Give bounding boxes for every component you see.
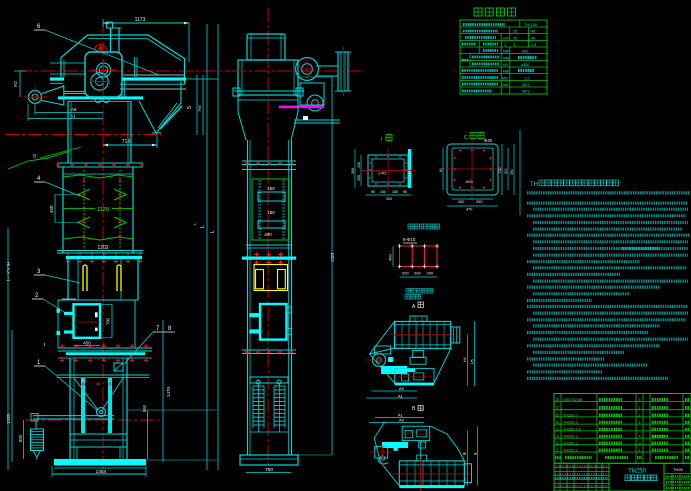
svg-text:1120: 1120 [97,207,109,213]
svg-text:200: 200 [402,271,409,276]
svg-text:1: 1 [638,406,640,410]
svg-text:320: 320 [386,197,392,201]
svg-text:A9: A9 [399,386,405,391]
svg-text:Q235-A: Q235-A [652,435,665,439]
svg-text:TH250: TH250 [628,469,647,475]
svg-text:1: 1 [638,449,640,453]
svg-text:H( A.A —): H( A.A —) [6,262,11,282]
svg-text:90: 90 [403,190,407,194]
svg-text:800: 800 [18,434,23,442]
svg-text:250: 250 [267,186,275,191]
svg-text:H5: H5 [471,359,475,364]
svg-text:200: 200 [427,271,434,276]
svg-text:A9: A9 [71,107,77,112]
svg-text:600: 600 [466,179,473,184]
svg-text:390: 390 [510,169,514,175]
svg-text:150: 150 [380,190,386,194]
svg-text:30: 30 [513,37,517,41]
svg-text:2: 2 [638,442,640,446]
svg-text:470: 470 [466,208,472,212]
svg-text:TH25: TH25 [673,467,684,472]
svg-text:TH250.1: TH250.1 [563,449,578,453]
svg-text:400: 400 [522,50,528,54]
svg-text:M/S: M/S [502,77,509,81]
svg-text:Ⅰ: Ⅰ [44,342,45,348]
svg-text:⊥: ⊥ [192,222,197,226]
svg-text:130: 130 [498,167,502,173]
svg-text:r/mb: r/mb [501,83,508,87]
svg-text:1.3: 1.3 [531,43,536,47]
svg-text:1335: 1335 [6,413,11,424]
svg-text:1323: 1323 [330,252,335,262]
svg-text:60: 60 [439,168,443,172]
svg-text:TH250.6: TH250.6 [563,421,578,425]
svg-text:4: 4 [638,435,640,439]
svg-text:400: 400 [264,232,272,237]
svg-text:1173: 1173 [135,17,146,23]
svg-text:40: 40 [531,30,535,34]
svg-text:260: 260 [458,200,464,204]
svg-text:25: 25 [513,30,517,34]
svg-text:450: 450 [388,254,393,261]
svg-text:130: 130 [357,162,361,168]
svg-text:48.5: 48.5 [522,83,529,87]
svg-text:1202: 1202 [97,245,108,251]
svg-text:C: C [464,135,468,141]
svg-text:1-Φ2: 1-Φ2 [378,172,387,176]
svg-text:1464: 1464 [96,469,107,475]
svg-text:8-Φ10: 8-Φ10 [403,237,416,242]
svg-text:GB5782-86: GB5782-86 [563,398,582,402]
svg-text:MM: MM [503,50,509,54]
svg-text:KN: KN [503,63,508,67]
svg-text:MM: MM [503,57,509,61]
svg-text:A1: A1 [398,393,404,398]
svg-text:3: 3 [513,43,515,47]
svg-text:200: 200 [414,271,421,276]
svg-text:780: 780 [106,317,111,325]
svg-text:4: 4 [638,398,640,402]
svg-text:750: 750 [265,467,273,473]
svg-text:5: 5 [187,106,193,109]
svg-text:90: 90 [371,190,375,194]
svg-text:B: B [33,154,37,160]
svg-text:TH250.2: TH250.2 [563,442,578,446]
svg-text:mm: mm [503,37,509,41]
svg-text:B: B [462,452,467,455]
svg-text:H4: H4 [463,357,467,362]
svg-text:1.2: 1.2 [524,77,529,81]
svg-text:1: 1 [638,421,640,425]
svg-text:Φ40: Φ40 [484,138,493,143]
svg-text:TH: TH [530,182,538,188]
svg-text:1: 1 [504,43,506,47]
svg-text:MM: MM [503,70,509,74]
svg-text:450: 450 [49,205,54,213]
svg-text:TH 150: TH 150 [524,22,538,27]
svg-text:940: 940 [142,404,147,412]
svg-text:1470: 1470 [166,386,171,397]
svg-text:TH250.7: TH250.7 [563,414,578,418]
svg-text:150: 150 [392,190,398,194]
svg-text:155: 155 [357,175,361,181]
svg-text:L: L [210,230,216,233]
svg-text:200: 200 [476,200,482,204]
svg-text:H2: H2 [13,81,18,87]
svg-text:TH250.3: TH250.3 [563,435,578,439]
svg-text:A1: A1 [398,412,404,417]
svg-text:300: 300 [504,168,508,174]
svg-text:713: 713 [122,139,131,145]
svg-text:L: L [200,225,206,228]
svg-text:360: 360 [351,168,355,174]
svg-text:40: 40 [531,37,535,41]
svg-text:765: 765 [197,105,202,112]
svg-text:A9: A9 [399,418,405,423]
svg-text:TH250.4,5: TH250.4,5 [563,428,581,432]
svg-text:180: 180 [267,210,275,215]
svg-text:48.5: 48.5 [522,90,529,94]
svg-text:≥320: ≥320 [521,63,529,67]
svg-text:1: 1 [638,414,640,418]
